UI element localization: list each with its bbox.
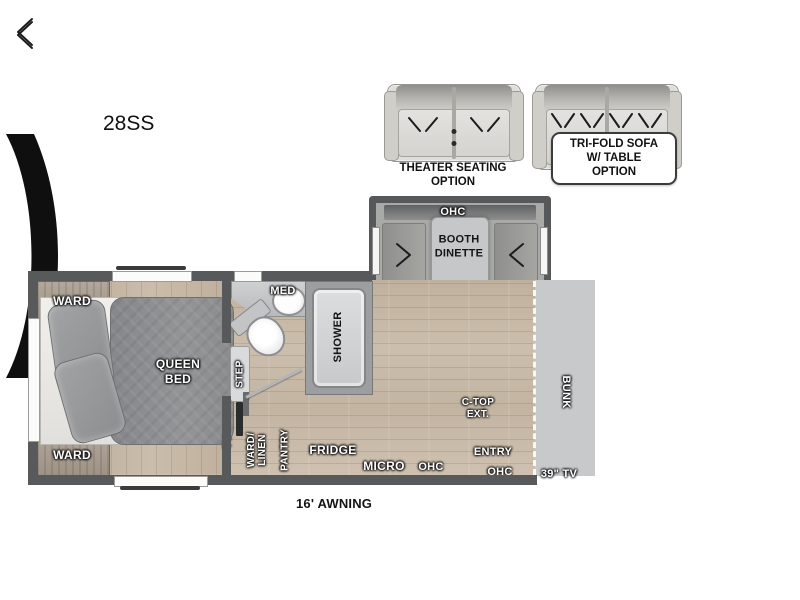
- fridge-label: FRIDGE: [309, 443, 356, 457]
- stitch-mark-icon: [468, 115, 502, 135]
- caption-line: W/ TABLE: [587, 152, 642, 164]
- wardrobe-top-label: WARD: [53, 294, 91, 308]
- window-left-bedroom: [28, 318, 40, 442]
- dinette-bench-right: [494, 223, 538, 287]
- caption-line: TRI-FOLD SOFA: [570, 138, 658, 150]
- shower-label: SHOWER: [332, 312, 344, 363]
- queen-bed-label: QUEENBED: [156, 357, 200, 387]
- pantry-label: PANTRY: [280, 429, 291, 471]
- ward-linen-label: WARD/LINEN: [246, 433, 268, 468]
- slideout-window: [372, 227, 380, 275]
- tire-icon: [0, 417, 24, 428]
- wall-tv-divider: [222, 396, 231, 476]
- micro-label: MICRO: [363, 459, 405, 473]
- bedroom-tv: [236, 402, 243, 436]
- tire-icon: [0, 428, 24, 439]
- medicine-cabinet-label: MED: [270, 285, 295, 297]
- sofa-divider: [452, 87, 456, 159]
- stitch-mark-icon: [505, 240, 527, 270]
- kitchen-ohc-label: OHC: [418, 461, 443, 473]
- side-mirror-icon: [0, 383, 30, 399]
- bunk-cushion-top: [0, 0, 800, 70]
- floorplan-canvas: 28SS THEATER SEATING OPTION: [0, 0, 800, 600]
- stitch-mark-icon: [393, 240, 415, 270]
- stitch-mark-icon: [406, 115, 440, 135]
- wall-bath-divider: [222, 281, 231, 343]
- trifold-sofa-caption: TRI-FOLD SOFA W/ TABLE OPTION: [551, 132, 677, 185]
- stitch-mark-icon: [12, 15, 36, 49]
- wall-bottom: [28, 475, 537, 485]
- window-top-bedroom: [112, 271, 192, 282]
- bunk-label: BUNK: [560, 376, 572, 409]
- window-awning-top: [116, 266, 186, 270]
- wall-top: [28, 271, 372, 281]
- model-number-label: 28SS: [103, 112, 154, 136]
- theater-seat-graphic: [387, 84, 521, 162]
- step-label: STEP: [235, 360, 246, 387]
- awning-label: 16' AWNING: [296, 496, 372, 511]
- caption-line: OPTION: [431, 176, 475, 188]
- stitch-mark-icon: [548, 111, 664, 131]
- entry-label: ENTRY: [474, 446, 512, 458]
- dinette-label: BOOTHDINETTE: [435, 233, 483, 261]
- cab-boundary-dashed-line: [533, 281, 536, 475]
- window-top-bath: [234, 271, 262, 282]
- slideout-window: [540, 227, 548, 275]
- caption-line: THEATER SEATING: [400, 162, 507, 174]
- ctop-ext-label: C-TOPEXT.: [462, 397, 494, 421]
- console-cupholder-icon: [452, 129, 457, 146]
- dinette-bench-left: [382, 223, 426, 287]
- theater-seating-caption: THEATER SEATING OPTION: [377, 162, 529, 190]
- caption-line: OPTION: [592, 166, 636, 178]
- dinette-slideout: OHC BOOTHDINETTE: [369, 196, 551, 291]
- tv-39-label: 39" TV: [541, 468, 577, 480]
- window-awning-bottom: [120, 486, 200, 490]
- wardrobe-bottom-label: WARD: [53, 448, 91, 462]
